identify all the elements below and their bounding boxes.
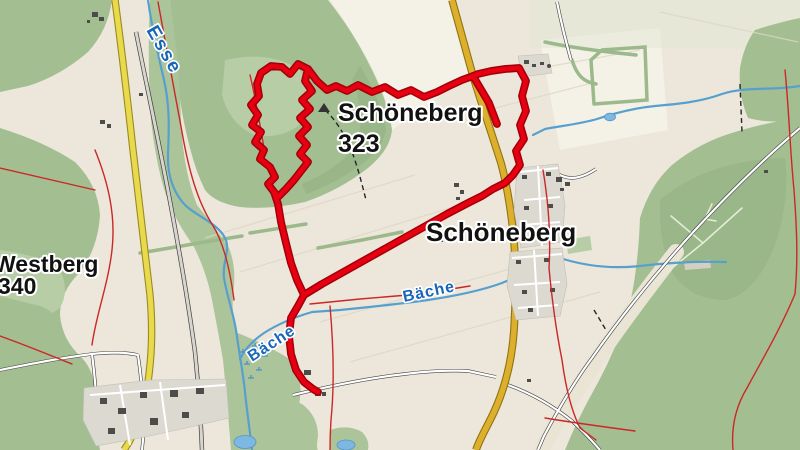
hill-label-name: Schöneberg — [338, 99, 482, 127]
building — [322, 392, 326, 396]
building — [524, 60, 529, 64]
building — [764, 170, 768, 173]
riparian-pond — [252, 399, 318, 450]
map-svg: Esse Bäche Bäche Schöneberg 323 Schönebe… — [0, 0, 800, 450]
marked-trail — [92, 150, 113, 345]
building — [108, 428, 115, 434]
building — [528, 308, 533, 312]
building — [100, 120, 105, 124]
building — [150, 418, 158, 425]
building — [565, 182, 570, 186]
building — [556, 177, 562, 182]
building — [456, 197, 460, 200]
building — [140, 392, 147, 398]
building — [196, 388, 204, 394]
dashed-footpath — [594, 310, 606, 330]
building — [522, 175, 527, 179]
building — [107, 124, 111, 128]
building — [87, 20, 90, 23]
building — [454, 183, 459, 187]
west-hill-label-elevation: 340 — [0, 273, 36, 299]
building — [544, 258, 549, 262]
topo-map-canvas[interactable]: Esse Bäche Bäche Schöneberg 323 Schönebe… — [0, 0, 800, 450]
building — [170, 390, 178, 397]
building — [182, 412, 189, 418]
building — [100, 398, 107, 404]
building — [547, 64, 551, 68]
building — [92, 12, 98, 17]
hill-label-elevation: 323 — [338, 130, 380, 158]
building — [560, 188, 564, 191]
building — [540, 62, 544, 65]
building — [532, 64, 536, 67]
building — [516, 260, 521, 264]
building — [118, 408, 126, 414]
stream-label-baeche: Bäche — [401, 278, 456, 306]
building — [546, 172, 551, 176]
pond — [605, 113, 616, 121]
building — [522, 290, 527, 294]
pond — [337, 440, 355, 450]
town-label: Schöneberg — [426, 217, 576, 247]
building — [524, 206, 529, 210]
building — [99, 17, 104, 21]
pond — [234, 436, 256, 449]
marked-trail — [330, 306, 333, 450]
building — [548, 204, 553, 208]
building — [139, 93, 143, 96]
building — [527, 379, 531, 382]
building — [304, 370, 311, 375]
town-block — [83, 379, 229, 446]
building — [460, 190, 464, 194]
white-road — [293, 371, 496, 395]
